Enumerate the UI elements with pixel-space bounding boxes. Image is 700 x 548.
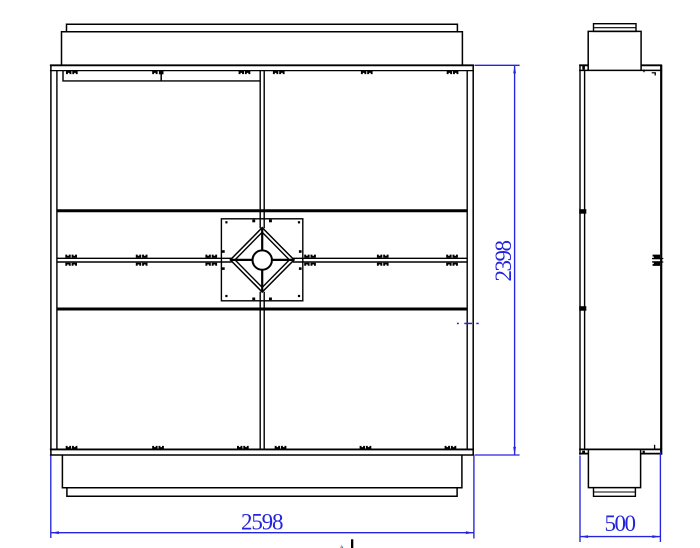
svg-text:2598: 2598 <box>241 510 284 535</box>
svg-text:500: 500 <box>605 511 637 536</box>
svg-text:2398: 2398 <box>491 240 516 282</box>
